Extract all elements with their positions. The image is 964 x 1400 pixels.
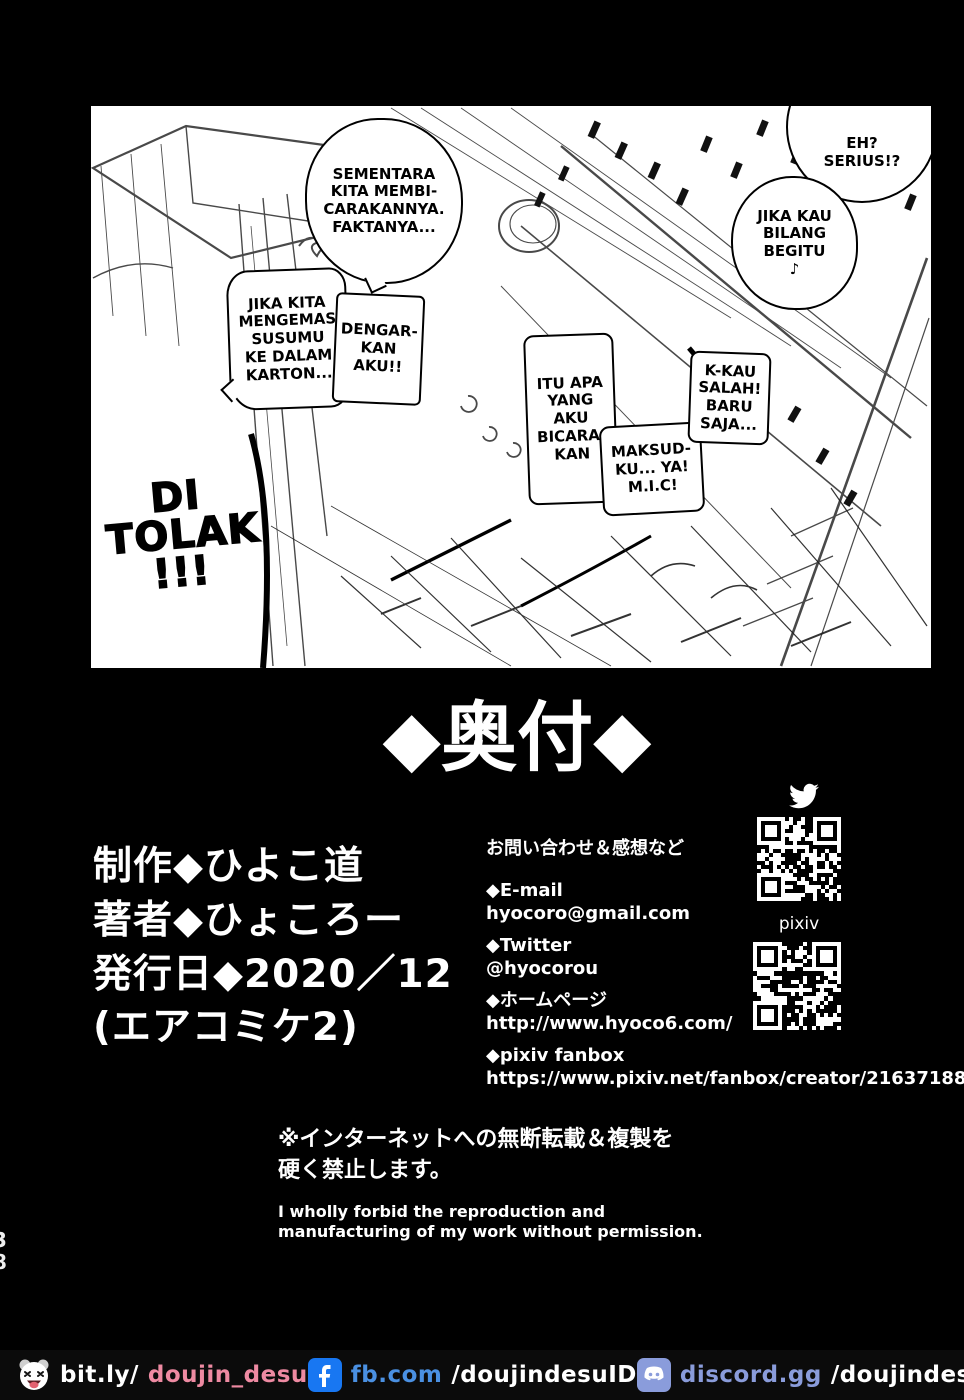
manga-panel: SEMENTARA KITA MEMBI- CARAKANNYA. FAKTAN… <box>88 103 934 671</box>
footer-url-handle: doujin_desu <box>148 1362 308 1388</box>
rubble-lines <box>271 488 927 666</box>
shout-bubble-dengarkan: DENGAR- KAN AKU!! <box>332 292 426 406</box>
footer-link-facebook: fb.com/doujindesuID <box>308 1358 637 1392</box>
contact-heading: お問い合わせ＆感想など <box>486 834 956 860</box>
contact-label-twitter: ◆Twitter <box>486 935 956 958</box>
bubble-text: MAKSUD- KU... YA! M.I.C! <box>611 440 694 497</box>
footer-link-bitly: bit.ly/doujin_desu <box>17 1358 308 1392</box>
panda-icon <box>17 1358 51 1392</box>
pixiv-logo-label: pixiv <box>757 914 841 934</box>
twitter-qr-code <box>757 817 841 901</box>
discord-icon <box>637 1358 671 1392</box>
speech-bubble-jika-kau: JIKA KAU BILANG BEGITU ♪ <box>731 176 858 310</box>
bubble-text: DENGAR- KAN AKU!! <box>339 321 418 377</box>
scanlation-footer-bar: bit.ly/doujin_desu fb.com/doujindesuID d… <box>0 1350 964 1400</box>
footer-url-handle: /doujindesuID <box>451 1362 636 1388</box>
contact-value-homepage: http://www.hyoco6.com/ <box>486 1013 956 1036</box>
bubble-text: SEMENTARA KITA MEMBI- CARAKANNYA. FAKTAN… <box>323 166 444 237</box>
bubble-text: JIKA KAU BILANG BEGITU ♪ <box>757 208 832 279</box>
facebook-icon <box>308 1358 342 1392</box>
credit-line-event: (エアコミケ2) <box>93 1001 453 1055</box>
contact-label-pixiv-fanbox: ◆pixiv fanbox <box>486 1045 956 1068</box>
bubble-text: K-KAU SALAH! BARU SAJA... <box>697 362 762 435</box>
contact-value-twitter: @hyocorou <box>486 958 956 981</box>
copyright-notice: ※インターネットへの無断転載＆複製を 硬く禁止します。 I wholly for… <box>278 1124 703 1241</box>
credit-line-production: 制作◆ひよこ道 <box>93 840 453 894</box>
colophon-title: ◆奥付◆ <box>70 676 964 786</box>
sfx-di-tolak: DI TOLAK !!! <box>101 472 255 598</box>
bubble-text: EH? SERIUS!? <box>824 135 901 170</box>
credit-line-publish-date: 発行日◆2020／12 <box>93 948 453 1002</box>
credits-block: 制作◆ひよこ道 著者◆ひょころー 発行日◆2020／12 (エアコミケ2) <box>93 840 453 1055</box>
doujin-colophon-page: SEMENTARA KITA MEMBI- CARAKANNYA. FAKTAN… <box>0 0 964 1400</box>
pixiv-qr-code <box>753 942 841 1030</box>
footer-url-prefix: bit.ly/ <box>60 1362 139 1388</box>
footer-url-prefix: discord.gg <box>680 1362 822 1388</box>
contact-label-email: ◆E-mail <box>486 880 956 903</box>
footer-link-discord: discord.gg/doujindesu <box>637 1358 964 1392</box>
footer-url-handle: /doujindesu <box>831 1362 964 1388</box>
twitter-bird-icon <box>786 781 822 811</box>
notice-japanese: ※インターネットへの無断転載＆複製を 硬く禁止します。 <box>278 1124 703 1186</box>
footer-url-prefix: fb.com <box>351 1362 443 1388</box>
page-number: 38 <box>0 1229 6 1273</box>
credit-line-author: 著者◆ひょころー <box>93 894 453 948</box>
contact-value-email: hyocoro@gmail.com <box>486 903 956 926</box>
contact-block: お問い合わせ＆感想など ◆E-mail hyocoro@gmail.com ◆T… <box>486 834 956 1100</box>
notice-english: I wholly forbid the reproduction and man… <box>278 1202 703 1240</box>
contact-label-homepage: ◆ホームページ <box>486 990 956 1013</box>
bubble-text: JIKA KITA MENGEMAS SUSUMU KE DALAM KARTO… <box>238 293 339 385</box>
contact-value-pixiv-fanbox: https://www.pixiv.net/fanbox/creator/216… <box>486 1068 956 1091</box>
speech-bubble-kkau-salah: K-KAU SALAH! BARU SAJA... <box>687 351 771 446</box>
speech-bubble-sementara: SEMENTARA KITA MEMBI- CARAKANNYA. FAKTAN… <box>305 118 463 284</box>
bubble-text: ITU APA YANG AKU BICARA- KAN <box>535 374 607 465</box>
